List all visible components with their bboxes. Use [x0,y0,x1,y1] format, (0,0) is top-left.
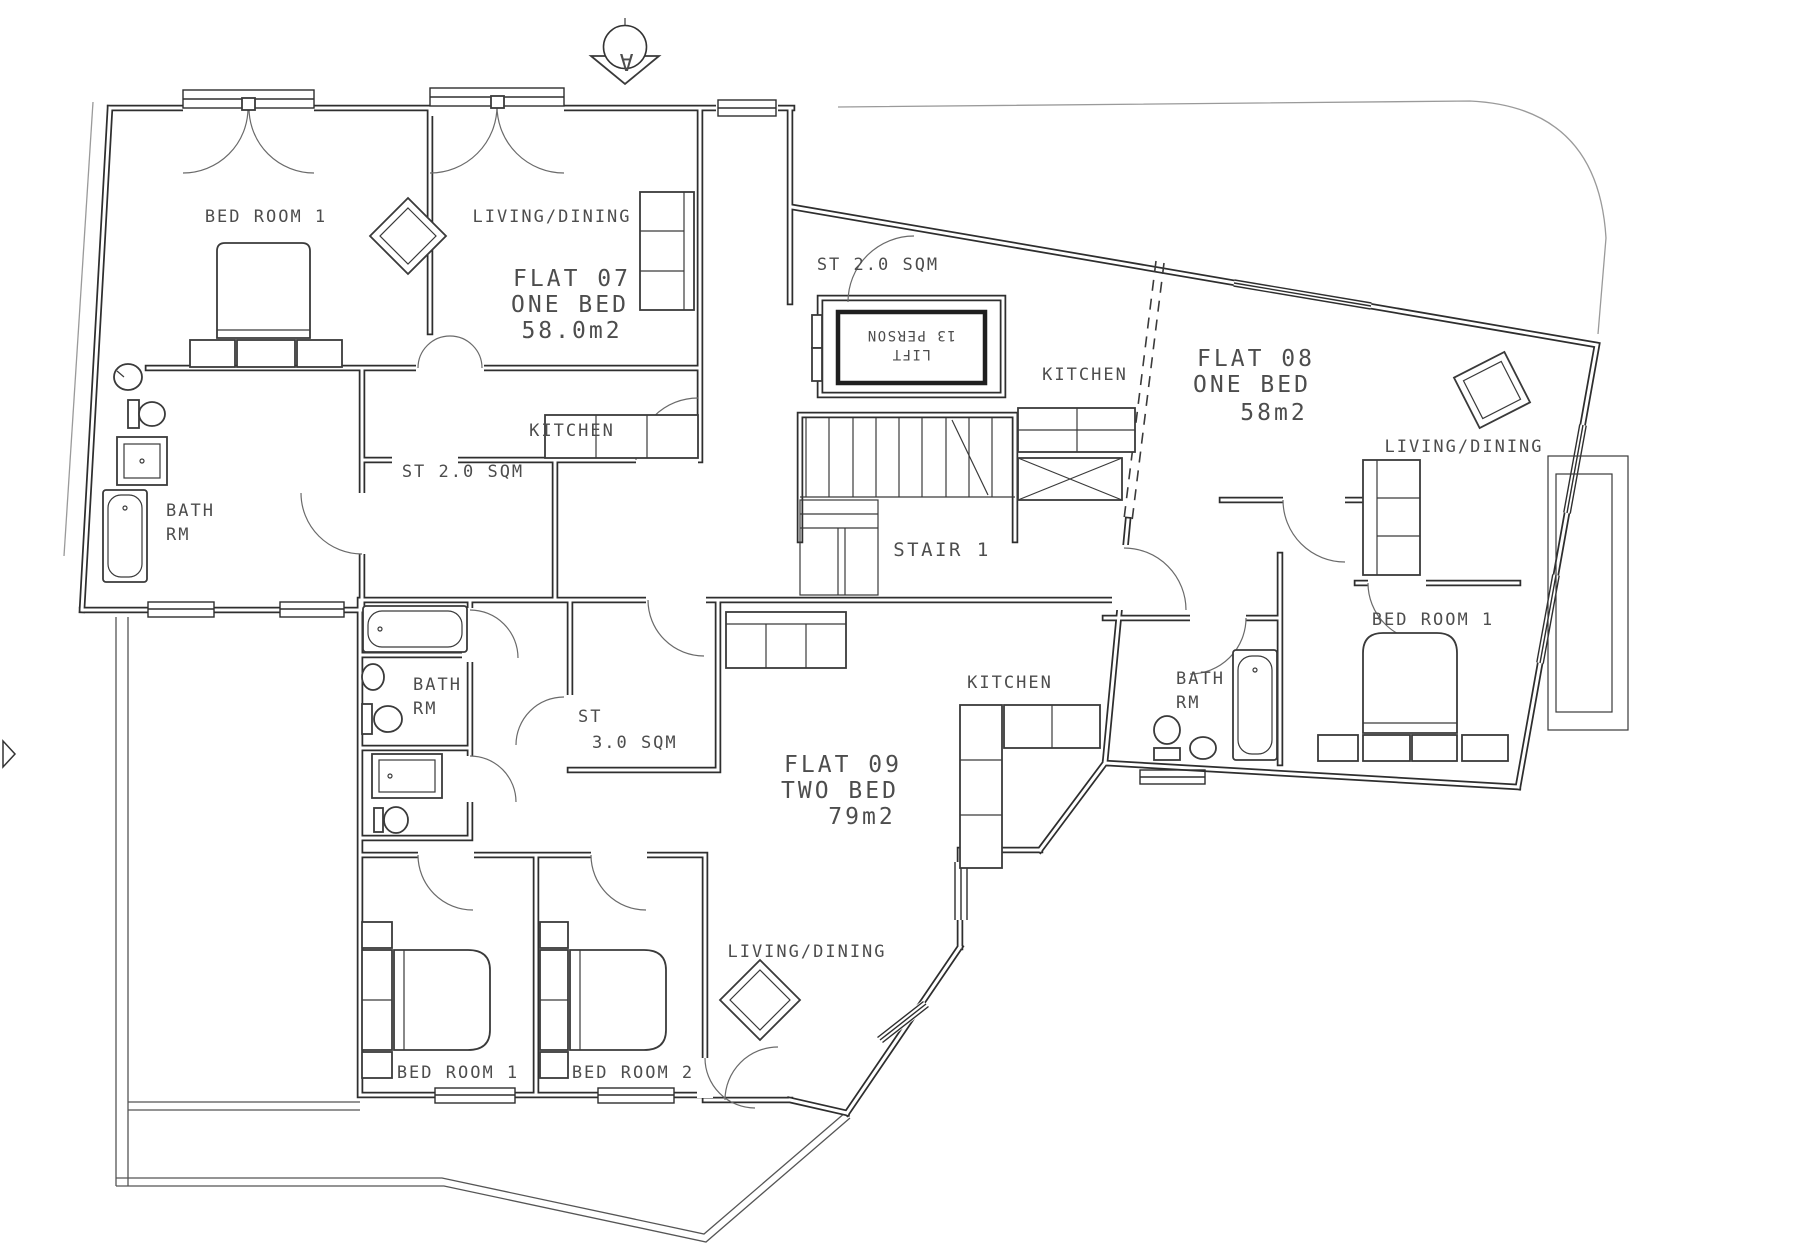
label-flat08-bath1: BATH [1176,669,1225,689]
bathtub-icon [103,490,147,582]
sofa-icon [1363,460,1420,575]
appliance-icon [1018,458,1122,500]
label-flat07-bath2: RM [166,525,190,545]
bathtub-icon [1233,650,1277,760]
left-edge-arrow-icon [3,741,15,767]
label-core-storage: ST 2.0 SQM [817,255,939,275]
floor-plan-page: LIFT 13 PERSON [0,0,1800,1248]
label-flat07-type: ONE BED [511,292,629,318]
lift-symbol: LIFT 13 PERSON [812,312,985,383]
door-mullion [491,96,504,108]
door-arc [516,697,564,745]
kitchen-counter [960,705,1100,868]
label-flat09-st2: 3.0 SQM [592,733,678,753]
sink-icon [114,364,142,390]
toilet-icon [128,400,165,428]
stair-symbol [800,418,1015,595]
label-stair: STAIR 1 [893,539,991,561]
sofa-icon [640,192,694,310]
label-flat08-bedroom: BED ROOM 1 [1372,610,1494,630]
sink-icon [1190,737,1216,759]
label-flat09-st1: ST [578,707,602,727]
label-flat08-name: FLAT 08 [1197,346,1315,372]
shower-icon [372,754,442,798]
label-flat07-bedroom: BED ROOM 1 [205,207,327,227]
armchair-icon [720,960,800,1040]
armchair-icon [1442,340,1543,441]
label-flat08-bath2: RM [1176,693,1200,713]
bed-icon [540,922,666,1078]
label-flat07-area: 58.0m2 [521,318,622,344]
label-flat09-type: TWO BED [781,778,899,804]
label-flat08-kitchen: KITCHEN [1042,365,1128,385]
label-flat08-living: LIVING/DINING [1384,437,1543,457]
door-arc [183,108,248,173]
label-flat07-kitchen: KITCHEN [529,421,615,441]
label-flat09-bedroom2: BED ROOM 2 [572,1063,694,1083]
label-flat07-bath1: BATH [166,501,215,521]
stair-break-line [952,420,988,495]
label-flat08-area: 58m2 [1240,400,1307,426]
toilet-icon [362,704,402,734]
lift-label-line1: LIFT [891,346,931,362]
door-arc [1283,500,1345,562]
toilet-icon [1154,716,1180,760]
label-flat09-kitchen: KITCHEN [967,673,1053,693]
door-arc [591,855,646,910]
door-mullion [242,98,255,110]
door-arc [418,855,473,910]
label-flat09-area: 79m2 [828,804,895,830]
floor-plan-svg: LIFT 13 PERSON [0,0,1800,1248]
section-marker: A [591,18,659,84]
lift-label-group: LIFT 13 PERSON [866,327,955,362]
balcony-outline [1548,456,1628,730]
label-flat07-living: LIVING/DINING [472,207,631,227]
sink-icon [362,664,384,690]
label-flat07-storage: ST 2.0 SQM [402,462,524,482]
armchair-icon [370,198,446,274]
shower-icon [117,437,167,485]
kitchen-counter [1018,408,1135,452]
toilet-icon [374,807,408,833]
door-arc [648,600,704,656]
window-icon [1140,770,1205,784]
door-arc [430,106,497,173]
label-flat09-bath1: BATH [413,675,462,695]
door-arc [497,106,564,173]
section-marker-letter: A [617,48,634,74]
label-flat07-name: FLAT 07 [513,266,631,292]
door-arc [301,493,362,554]
bed-icon [190,243,342,367]
label-flat09-living: LIVING/DINING [727,942,886,962]
bathtub-icon [363,606,467,652]
bed-icon [362,922,490,1078]
lift-door [812,348,822,381]
door-arc [249,108,314,173]
bed-icon [1318,633,1508,761]
label-flat09-name: FLAT 09 [784,752,902,778]
lift-label-line2: 13 PERSON [866,327,955,343]
door-arc [725,1047,778,1100]
label-flat08-type: ONE BED [1193,372,1311,398]
dashed-wall [1124,261,1164,521]
sofa-icon [726,612,846,668]
lift-door [812,315,822,348]
label-flat09-bath2: RM [413,699,437,719]
label-flat09-bedroom1: BED ROOM 1 [397,1063,519,1083]
